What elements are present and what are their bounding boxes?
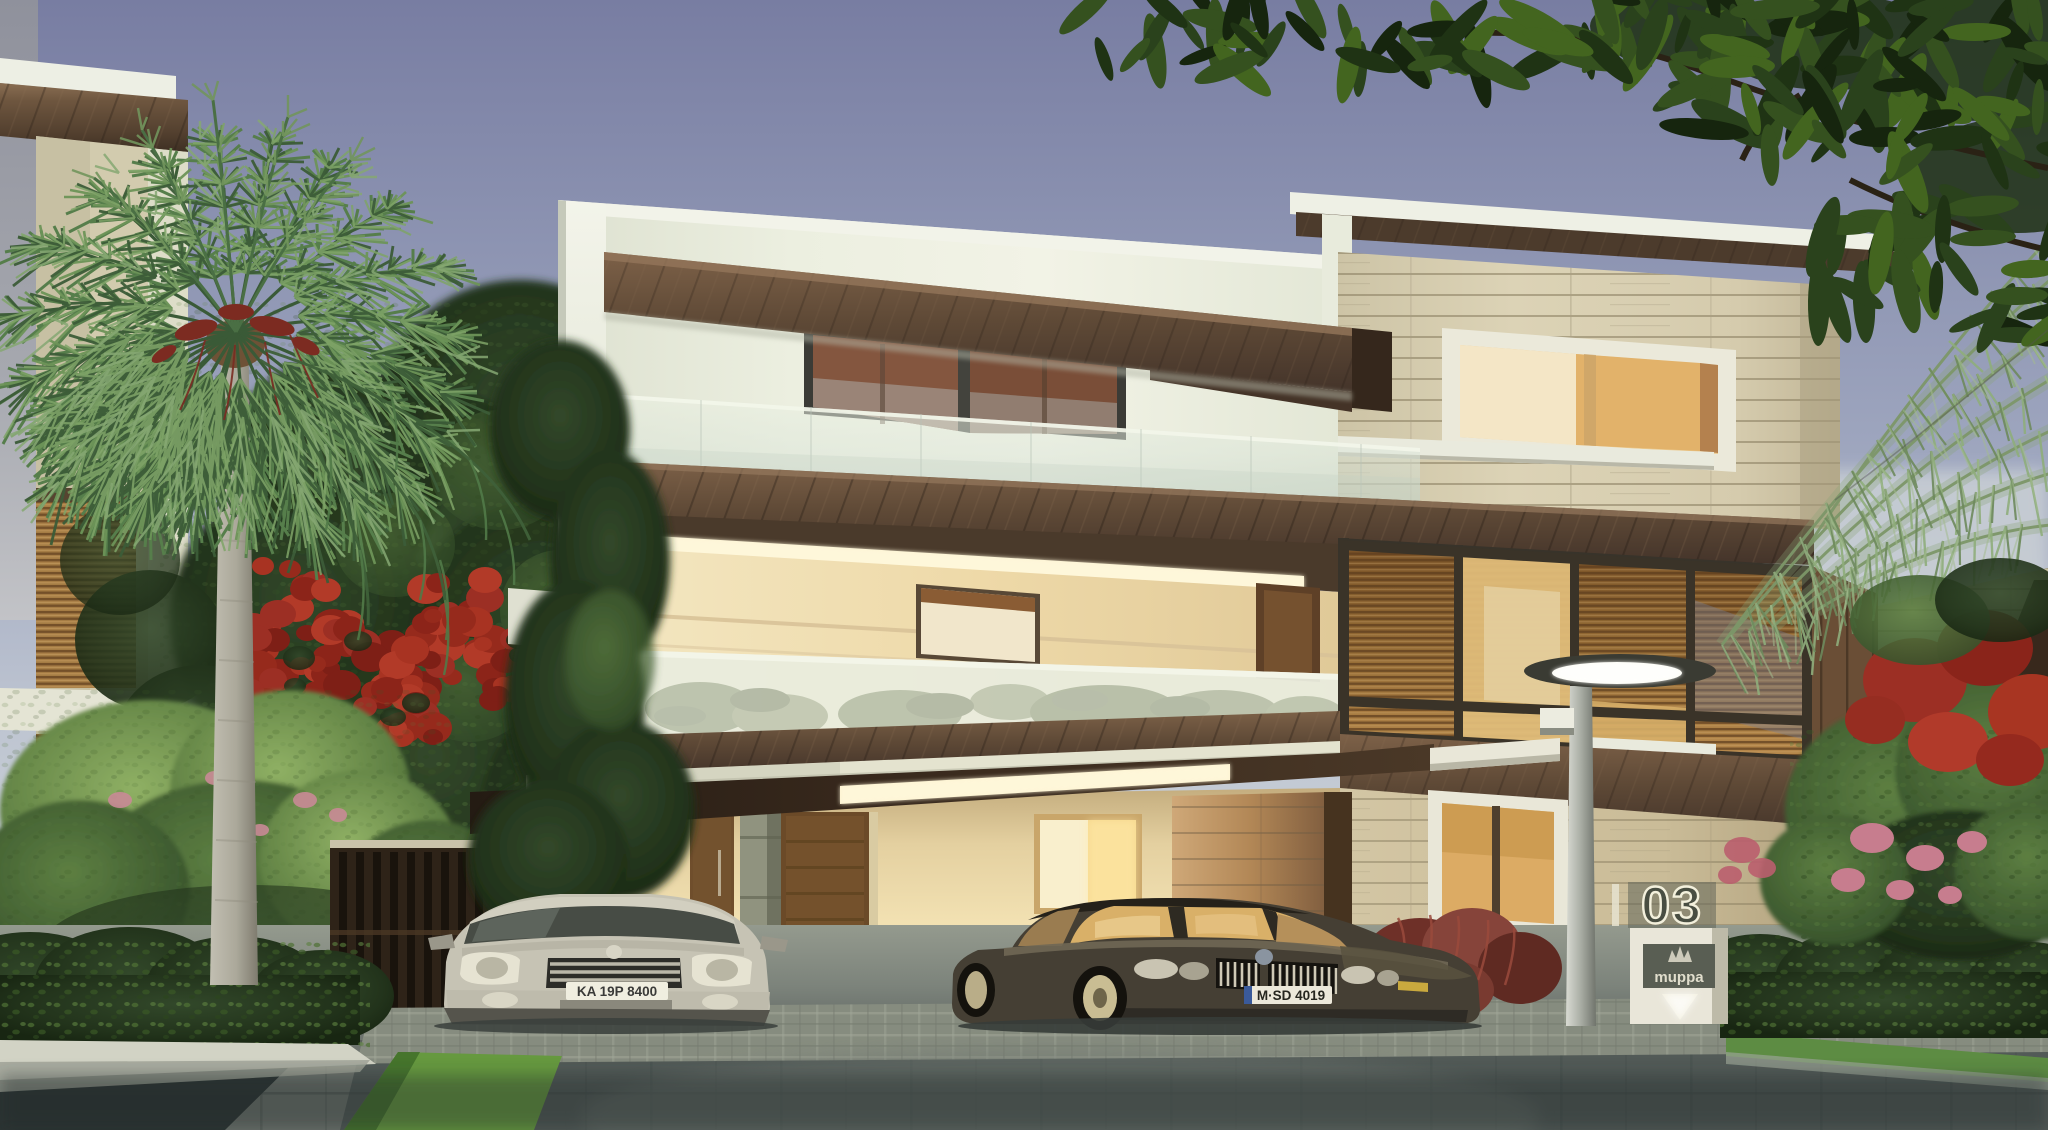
svg-text:KA 19P 8400: KA 19P 8400 — [577, 984, 657, 999]
svg-text:03: 03 — [1641, 877, 1703, 935]
svg-text:muppa: muppa — [1654, 969, 1704, 986]
svg-text:M·SD 4019: M·SD 4019 — [1257, 988, 1325, 1003]
